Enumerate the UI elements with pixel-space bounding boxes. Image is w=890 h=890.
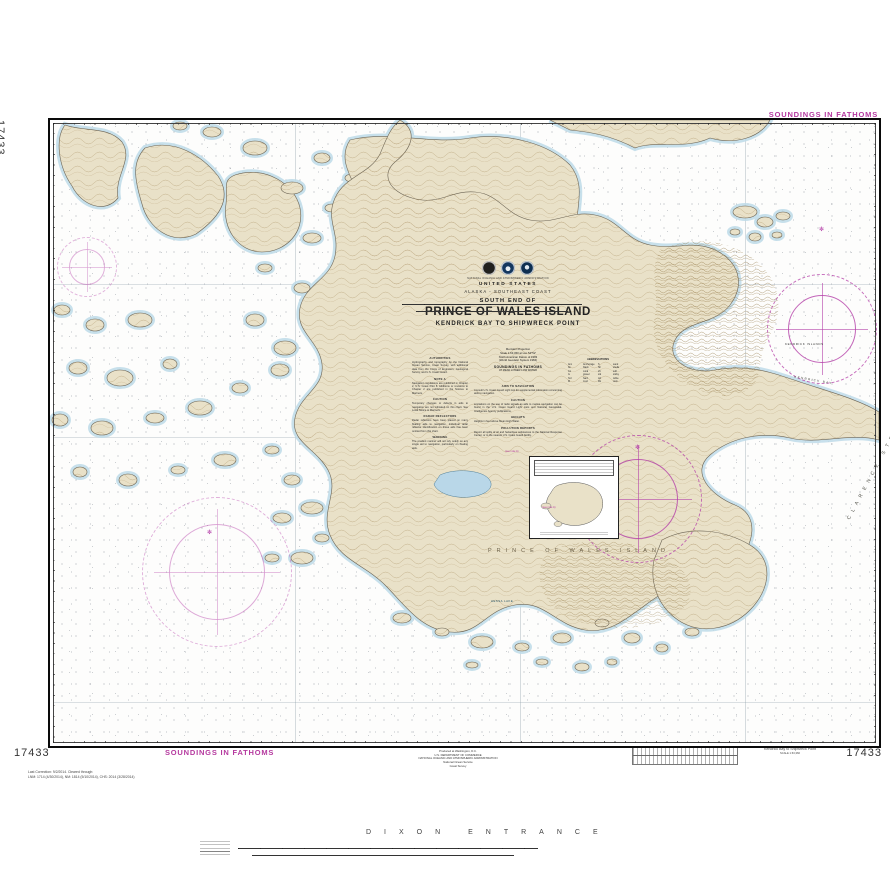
label-prince-of-wales-island: PRINCE OF WALES ISLAND	[488, 548, 670, 554]
country-label: UNITED STATES	[408, 282, 608, 287]
scale-legend-text	[200, 841, 230, 855]
scale-bar-nautical-miles	[238, 848, 538, 849]
correction-line-2: LNM: 1714 (4/30/2014), NM: 1814 (5/10/20…	[28, 775, 135, 780]
soundings-note-bottom-left: SOUNDINGS IN FATHOMS	[165, 748, 274, 757]
label-dixon-entrance: DIXON ENTRANCE	[366, 829, 611, 836]
inset-panel	[529, 456, 619, 539]
publisher-imprint: Produced at Washington, D.C. U.S. DEPART…	[398, 750, 518, 768]
super-title: SOUTH END OF	[408, 298, 608, 304]
abbreviations-title: ABBREVIATIONS	[568, 358, 628, 362]
note-body: Temporary changes or defects in aids to …	[412, 402, 468, 412]
chart-subtitle: KENDRICK BAY TO SHIPWRECK POINT	[408, 321, 608, 327]
corner-title-sub: SCALE 1:63,360	[735, 752, 845, 755]
scale-bar-yards	[252, 855, 514, 856]
agency-line: NATIONAL OCEANIC AND ATMOSPHERIC ADMINIS…	[408, 277, 608, 280]
chart-sheet: ✻ ✻ ✻ NATIONAL OCEANIC AND ATMOSPHERIC A…	[48, 118, 881, 748]
note-body: Navigation regulations are published in …	[412, 382, 468, 395]
notes-column-left: AUTHORITIES Hydrography and topography b…	[412, 354, 468, 450]
minute-ticks-bottom	[53, 741, 876, 743]
label-hessa-lake: HESSA LAKE	[491, 599, 513, 603]
region-label: ALASKA - SOUTHEAST COAST	[408, 289, 608, 294]
note-heading: NOTE A	[412, 378, 468, 382]
inset-caption-lines	[540, 532, 608, 536]
title-block: NATIONAL OCEANIC AND ATMOSPHERIC ADMINIS…	[408, 261, 608, 327]
note-body: Radar reflectors have been placed on man…	[412, 419, 468, 432]
water-note: (see note A)	[542, 506, 555, 509]
note-body: The prudent mariner will not rely solely…	[412, 440, 468, 450]
compass-rose-ne	[767, 274, 877, 384]
graphic-scale-yards	[416, 311, 568, 312]
minute-ticks-right	[874, 123, 876, 743]
nos-seal-icon	[520, 261, 534, 275]
projection-block: Mercator Projection Scale 1:63,360 at La…	[474, 348, 562, 372]
noaa-seal-icon	[501, 261, 515, 275]
note-body: Hydrography and topography by the Nation…	[412, 361, 468, 374]
label-kendrick-islands: KENDRICK ISLANDS	[785, 342, 824, 346]
abbreviations-table: ABBREVIATIONS AncAnchorageSsand bkblackS…	[568, 358, 628, 384]
note-heading: POLLUTION REPORTS	[474, 427, 562, 431]
corner-title: Kendrick Bay to Shipwreck Point SCALE 1:…	[735, 747, 845, 755]
compass-rose-w	[57, 237, 117, 297]
graphic-scale-miles	[402, 304, 582, 305]
note-body: Heights in feet above Mean High Water.	[474, 420, 562, 423]
inset-map	[532, 476, 616, 532]
north-mark-ne: ✻	[819, 226, 824, 233]
inset-light-list-table	[534, 460, 614, 476]
commerce-seal-icon	[482, 261, 496, 275]
minute-ticks-top	[53, 123, 876, 125]
soundings-datum: AT MEAN LOWER LOW WATER	[474, 369, 562, 372]
chart-number-top-left: 17433	[0, 120, 6, 156]
note-body: Report all spills of oil and hazardous s…	[474, 431, 562, 438]
chart-number-bottom-left: 17433	[14, 747, 50, 759]
water-note: (see note A)	[505, 450, 518, 453]
note-heading: CAUTION	[474, 399, 562, 403]
note-body: Consult U.S. Coast Guard Light List for …	[474, 389, 562, 396]
note-body: Limitations on the use of radio signals …	[474, 403, 562, 413]
note-heading: WARNING	[412, 436, 468, 440]
datum-line-2: (World Geodetic System 1984)	[474, 359, 562, 363]
north-mark-center: ✻	[635, 444, 640, 451]
agency-seals	[408, 261, 608, 275]
notes-column-center: AIDS TO NAVIGATION Consult U.S. Coast Gu…	[474, 382, 562, 437]
logarithmic-speed-scale	[632, 745, 738, 765]
correction-note: Last Correction: 9/2/2014. Cleared throu…	[28, 770, 135, 779]
imprint-line: Coast Survey	[398, 765, 518, 769]
chart-number-bottom-right: 17433	[846, 747, 882, 759]
minute-ticks-left	[53, 123, 55, 743]
compass-rose-sw	[142, 497, 292, 647]
north-mark-sw: ✻	[207, 529, 212, 536]
abbrev-row: MmudRkrock	[568, 380, 628, 383]
